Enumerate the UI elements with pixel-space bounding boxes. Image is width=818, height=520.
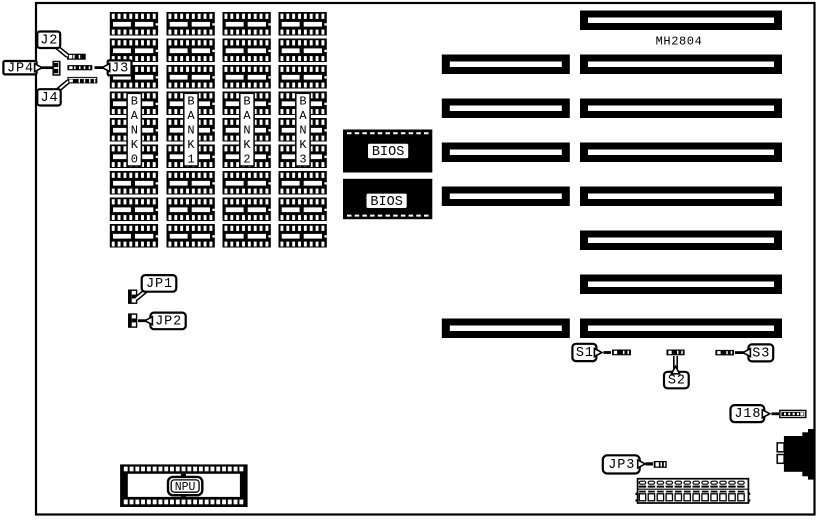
svg-text:K: K	[131, 138, 139, 152]
svg-text:A: A	[243, 109, 251, 123]
svg-text:N: N	[299, 124, 306, 138]
svg-text:3: 3	[299, 153, 306, 167]
svg-text:B: B	[299, 95, 306, 109]
svg-text:JP1: JP1	[146, 277, 173, 292]
svg-text:B: B	[243, 95, 250, 109]
svg-text:JP3: JP3	[608, 458, 635, 473]
svg-text:J2: J2	[40, 33, 58, 48]
svg-text:NPU: NPU	[175, 481, 196, 494]
svg-text:S2: S2	[668, 374, 686, 389]
svg-text:K: K	[299, 138, 307, 152]
svg-text:S1: S1	[576, 346, 594, 361]
svg-text:K: K	[187, 138, 195, 152]
svg-text:BIOS: BIOS	[370, 195, 402, 210]
svg-text:S3: S3	[752, 346, 770, 361]
svg-text:K: K	[243, 138, 251, 152]
svg-text:A: A	[299, 109, 307, 123]
svg-text:JP4: JP4	[7, 61, 34, 76]
svg-text:N: N	[131, 124, 138, 138]
svg-text:0: 0	[131, 153, 138, 167]
svg-text:J4: J4	[40, 91, 58, 106]
svg-text:MH2804: MH2804	[656, 35, 703, 49]
svg-text:J18: J18	[734, 407, 761, 422]
svg-text:J3: J3	[111, 61, 129, 76]
svg-text:1: 1	[187, 153, 194, 167]
svg-text:JP2: JP2	[155, 314, 182, 329]
svg-text:N: N	[243, 124, 250, 138]
svg-text:A: A	[131, 109, 139, 123]
svg-text:2: 2	[243, 153, 250, 167]
svg-text:BIOS: BIOS	[372, 145, 404, 160]
svg-text:B: B	[131, 95, 138, 109]
svg-text:B: B	[187, 95, 194, 109]
svg-text:A: A	[187, 109, 195, 123]
svg-text:N: N	[187, 124, 194, 138]
